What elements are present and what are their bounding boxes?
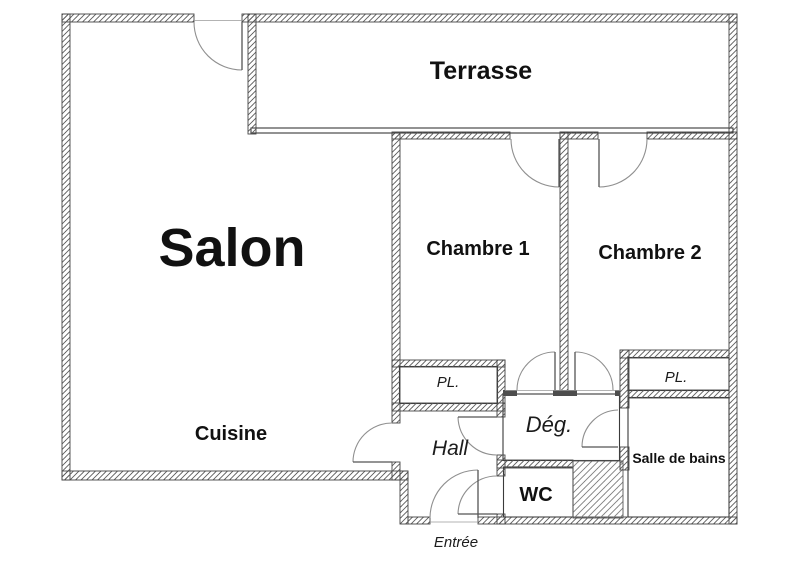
room-label-terrasse: Terrasse bbox=[430, 57, 532, 85]
room-label-hall: Hall bbox=[432, 437, 470, 460]
wall-hall-divider-a bbox=[497, 360, 505, 417]
door-chambre2-degagement bbox=[575, 352, 613, 390]
wall-salon-right-lower bbox=[392, 462, 400, 480]
wall-under-terrasse-c bbox=[647, 132, 737, 139]
door-terrasse-chambre1 bbox=[511, 139, 559, 187]
room-label-closet-left: PL. bbox=[437, 374, 460, 391]
room-label-degagement: Dég. bbox=[526, 412, 572, 437]
wall-wc-top bbox=[497, 460, 573, 468]
wall-hall-divider-c bbox=[497, 514, 505, 524]
technical-shaft bbox=[573, 461, 623, 518]
wall-salon-right-upper bbox=[392, 133, 400, 423]
wall-terrasse-divider bbox=[248, 14, 256, 134]
door-chambre1-degagement bbox=[517, 352, 555, 390]
room-label-chambre1: Chambre 1 bbox=[426, 238, 529, 260]
wall-closet-right-top bbox=[620, 350, 729, 358]
room-label-closet-right: PL. bbox=[665, 369, 688, 386]
room-label-salon: Salon bbox=[158, 218, 305, 278]
door-terrasse-chambre2 bbox=[599, 139, 647, 187]
room-label-salle-de-bains: Salle de bains bbox=[632, 450, 726, 466]
wall-chambre-divider bbox=[560, 132, 568, 392]
wall-left bbox=[62, 14, 70, 480]
wall-under-terrasse-a bbox=[392, 132, 510, 139]
wall-closet-left-bottom bbox=[392, 403, 505, 411]
floor-plan: Salon Terrasse Chambre 1 Chambre 2 Cuisi… bbox=[0, 0, 800, 565]
entry-label: Entrée bbox=[434, 534, 478, 551]
wall-closet-right-bottom bbox=[628, 390, 729, 398]
door-cuisine-hall bbox=[353, 423, 392, 462]
door-salon-top bbox=[194, 22, 242, 70]
wall-bathroom-left-upper bbox=[620, 350, 629, 408]
wall-bathroom-left-lower bbox=[620, 447, 629, 470]
wall-closet-left-top bbox=[392, 360, 505, 367]
wall-right bbox=[729, 14, 737, 524]
wall-salon-bottom bbox=[62, 471, 408, 480]
room-label-chambre2: Chambre 2 bbox=[598, 242, 701, 264]
wall-bottom-entry-left bbox=[408, 517, 430, 524]
wall-top-left bbox=[62, 14, 194, 22]
wall-top-right bbox=[242, 14, 737, 22]
floor-plan-drawing: Salon Terrasse Chambre 1 Chambre 2 Cuisi… bbox=[0, 0, 800, 565]
room-label-wc: WC bbox=[519, 484, 552, 506]
wall-vestibule-left bbox=[400, 471, 408, 524]
room-label-cuisine: Cuisine bbox=[195, 423, 267, 445]
door-entry bbox=[430, 470, 478, 518]
